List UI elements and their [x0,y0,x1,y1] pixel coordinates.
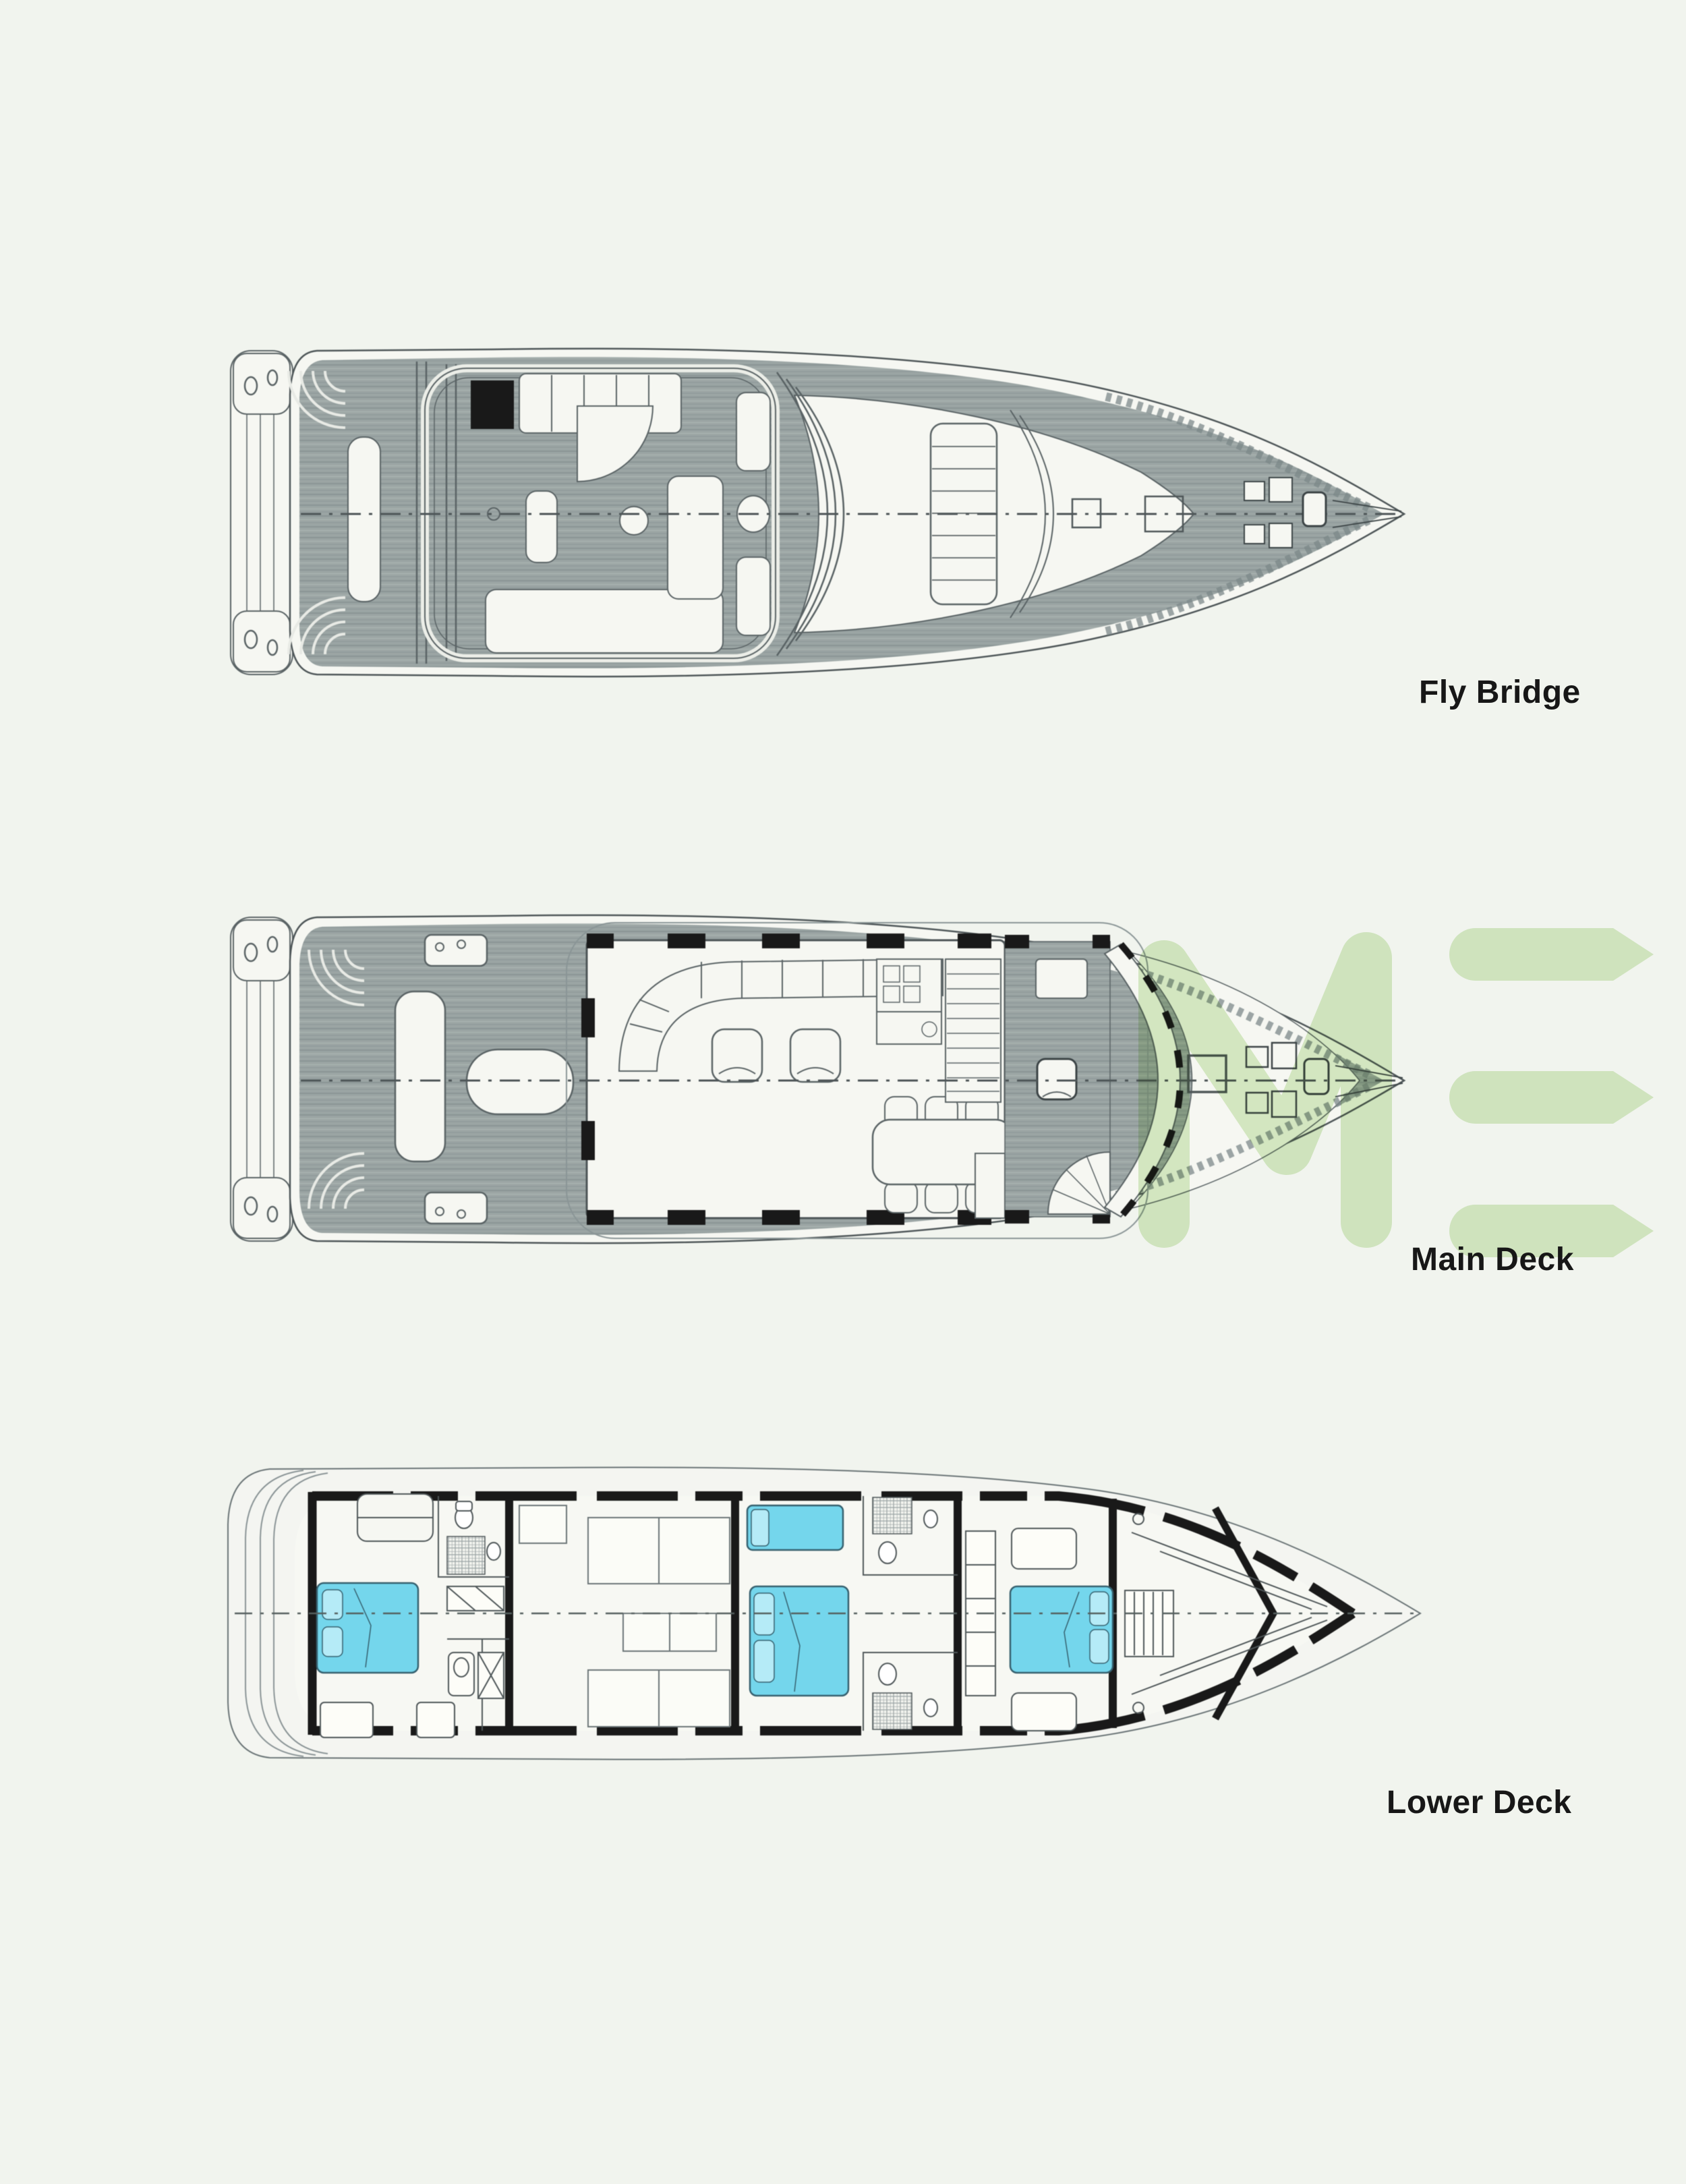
transom-bench [395,992,445,1161]
helm-seat [1037,1059,1076,1099]
lower-deck-label: Lower Deck [1387,1784,1571,1821]
galley [877,959,941,1044]
helm-seat-black [471,380,514,429]
brochure-page: Fly Bridge Main Deck Lower Deck [0,0,1686,2184]
main-deck-label: Main Deck [1411,1241,1574,1278]
swim-platform [231,917,293,1241]
lower-deck-plan [228,1467,1420,1759]
fly-bridge-plan [231,349,1404,677]
cockpit-table [467,1050,573,1114]
pilothouse [1005,935,1110,1224]
salon-cabinet [975,1153,1005,1218]
swim-platform [231,351,293,674]
main-deck-plan [231,915,1404,1243]
deck-plans-figure [0,0,1686,2184]
fly-bridge-label: Fly Bridge [1419,674,1581,711]
aft-seat [348,437,380,602]
